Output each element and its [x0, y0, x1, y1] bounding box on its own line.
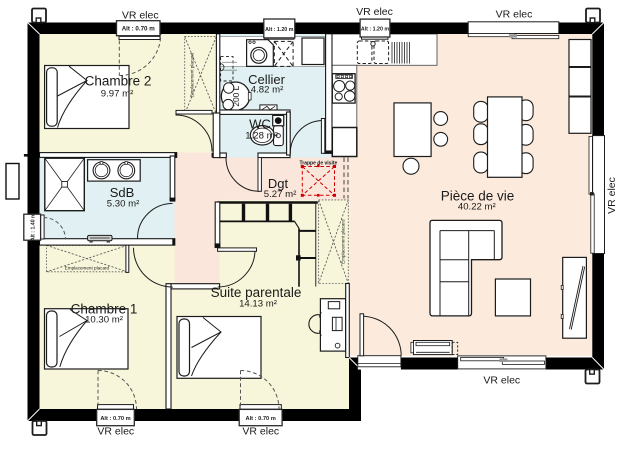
svg-text:Emplacement placard: Emplacement placard: [341, 219, 346, 264]
svg-text:Alt : 0.70 m: Alt : 0.70 m: [100, 416, 130, 422]
svg-text:10.30 m²: 10.30 m²: [85, 315, 124, 326]
svg-text:VR elec: VR elec: [483, 374, 520, 386]
svg-text:Emplacement placard: Emplacement placard: [65, 266, 110, 271]
svg-text:Alt : 0.70 m: Alt : 0.70 m: [245, 416, 275, 422]
svg-text:200 L: 200 L: [231, 85, 241, 106]
svg-text:9.97 m²: 9.97 m²: [101, 89, 134, 100]
svg-text:VR elec: VR elec: [242, 426, 279, 438]
svg-text:WC: WC: [249, 117, 271, 132]
svg-text:Trappe de visite: Trappe de visite: [300, 161, 338, 167]
svg-text:VR elec: VR elec: [97, 426, 134, 438]
svg-text:1.28 m²: 1.28 m²: [245, 131, 278, 142]
svg-text:4.82 m²: 4.82 m²: [251, 85, 284, 96]
svg-text:5.30 m²: 5.30 m²: [107, 199, 140, 210]
svg-text:Alt : 1.20 m: Alt : 1.20 m: [361, 27, 390, 33]
svg-text:40.22 m²: 40.22 m²: [458, 202, 497, 213]
svg-text:Alt : 1.40 m: Alt : 1.40 m: [30, 213, 36, 241]
svg-text:VR elec: VR elec: [496, 9, 533, 21]
svg-text:5.27 m²: 5.27 m²: [264, 189, 297, 200]
svg-text:VR elec: VR elec: [606, 177, 618, 214]
svg-text:VR elec: VR elec: [122, 10, 159, 22]
svg-text:Alt : 0.70 m: Alt : 0.70 m: [122, 26, 156, 33]
svg-text:14.13 m²: 14.13 m²: [239, 299, 278, 310]
svg-text:Emplacement placard: Emplacement placard: [190, 53, 195, 98]
svg-text:Alt : 1.20 m: Alt : 1.20 m: [265, 27, 294, 33]
svg-text:VR elec: VR elec: [356, 6, 393, 18]
svg-text:Chambre 2: Chambre 2: [85, 74, 152, 89]
